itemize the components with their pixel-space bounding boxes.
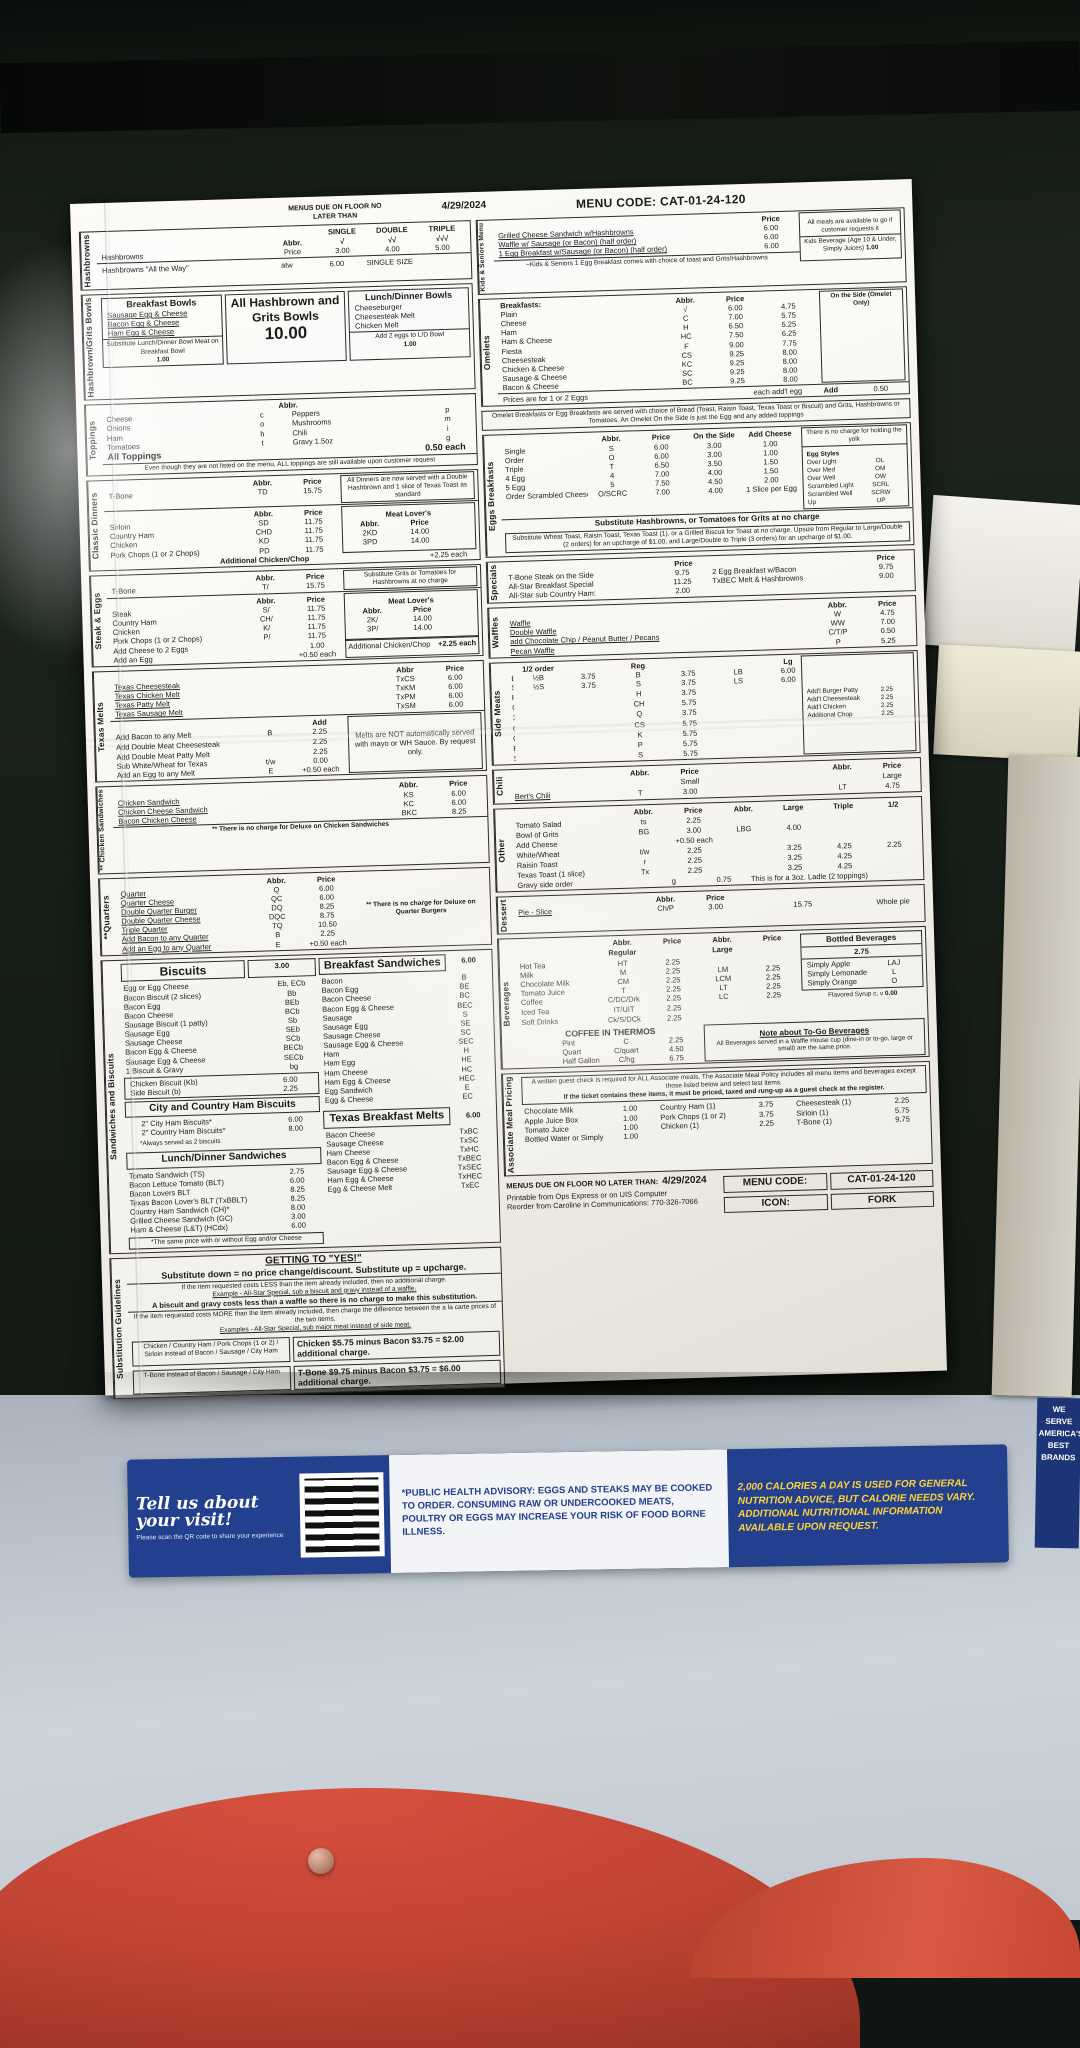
- table-cell: [514, 711, 564, 720]
- meat-lovers-table: Abbr.Price2K/14.003P/14.00: [347, 603, 476, 634]
- section-sandwiches-biscuits: Sandwiches and Biscuits Biscuits 3.00 Eg…: [100, 949, 501, 1254]
- scan-note: Please scan the QR code to share your ex…: [136, 1531, 286, 1541]
- table-cell: 1 Slice per Egg: [743, 484, 799, 495]
- table-cell: 3P/: [348, 624, 398, 635]
- table-row: Simply OrangeO: [805, 976, 919, 989]
- table-cell: 9.75: [877, 1114, 927, 1125]
- bottled-beverages-box: Bottled Beverages 2.75 Simply AppleLAJSi…: [800, 930, 924, 990]
- table-cell: r: [620, 857, 670, 868]
- onside-header-box: On the Side (Omelet Only): [819, 288, 906, 383]
- table-cell: 5.75: [665, 738, 715, 749]
- table-cell: [819, 819, 869, 828]
- section-label: Kids & Seniors Menu: [477, 221, 495, 294]
- table-cell: [870, 848, 920, 857]
- table-cell: [517, 948, 597, 958]
- table-cell: [869, 828, 919, 837]
- section-associate-meal: Associate Meal Pricing A written guest c…: [501, 1061, 933, 1177]
- addl-egg-label: each add'l egg: [750, 387, 806, 398]
- table-cell: Soft Drinks: [519, 1016, 599, 1028]
- steak-addl: Additional Chicken/Chop +2.25 each: [345, 636, 479, 658]
- table-cell: Abbr.: [597, 937, 647, 948]
- flavored-syrup: Flavored Syrup c, v 0.00: [802, 989, 924, 1000]
- table-cell: 2.25: [265, 1083, 315, 1094]
- breakfast-sandwiches-price: 6.00: [448, 951, 489, 974]
- footer-code-label: MENU CODE:: [723, 1173, 827, 1192]
- table-cell: Chicken (1): [658, 1119, 741, 1131]
- table-cell: 2.25: [669, 845, 719, 856]
- texas-melts-title: Texas Breakfast Melts: [323, 1107, 450, 1128]
- egg-styles-box: There is no charge for holding the yolk …: [801, 425, 910, 510]
- table-cell: [699, 1011, 749, 1020]
- table-cell: [565, 750, 615, 759]
- table-cell: Hashbrowns "All the Way": [100, 262, 262, 276]
- table-cell: [714, 705, 764, 714]
- table-cell: [715, 746, 765, 755]
- table-cell: 6.75: [651, 1053, 701, 1064]
- table-cell: 6.00: [431, 699, 481, 710]
- addl-chicken-chop-price: +2.25 each: [420, 549, 476, 560]
- section-label: Omelets: [479, 299, 498, 406]
- melts-adds: AddAdd Bacon to any MeltB2.25Add Double …: [113, 716, 346, 781]
- section-label: Other: [494, 809, 512, 892]
- section-label: Classic Dinners: [87, 481, 106, 570]
- table-cell: 2.25: [649, 1013, 699, 1024]
- table-cell: 5.75: [665, 748, 715, 759]
- chili-large-price: 4.75: [867, 781, 917, 792]
- bottled-list: Simply AppleLAJSimply LemonadeLSimply Or…: [805, 957, 920, 988]
- table-cell: EC: [443, 1091, 493, 1102]
- table-cell: O: [869, 976, 919, 987]
- footer-code-value: CAT-01-24-120: [830, 1170, 934, 1189]
- table-cell: 3.25: [770, 852, 820, 863]
- pie-abbr: Ch/P: [641, 903, 691, 914]
- table-cell: P: [813, 636, 863, 647]
- specials-left: T-Bone Steak on the Side9.75All-Star Bre…: [506, 567, 708, 600]
- side-meats-adds: Add'l Burger Patty2.25Add'l Cheesesteak2…: [801, 652, 917, 755]
- table-cell: [747, 942, 797, 951]
- table-cell: 3.75: [663, 677, 713, 688]
- table-cell: Simply Orange: [805, 977, 869, 988]
- togo-note: All meals are available to go if custome…: [802, 217, 898, 235]
- biscuits-title: Biscuits: [121, 960, 246, 982]
- togo-box: All meals are available to go if custome…: [799, 209, 902, 261]
- egg-styles-table: Egg StylesOver LightOLOver MedOMOver Wel…: [804, 445, 906, 507]
- table-cell: [514, 691, 564, 700]
- section-waffles: Waffles Abbr.PriceWaffleW4.75Double Waff…: [487, 595, 917, 658]
- table-cell: 3.75: [664, 687, 714, 698]
- tell-us-title: Tell us about your visit!: [136, 1493, 287, 1530]
- breakfast-bowls-box: Breakfast Bowls Sausage Egg & CheeseBaco…: [101, 295, 224, 368]
- section-specials: Specials Price Price T-Bone Steak on the…: [486, 549, 916, 604]
- table-cell: C/hg: [602, 1054, 652, 1065]
- section-beverages: Beverages Abbr.PriceAbbr.PriceRegularLar…: [497, 926, 930, 1070]
- table-cell: P: [615, 739, 665, 750]
- quarters-deluxe-note: ** There is no charge for Deluxe on Quar…: [354, 869, 488, 947]
- table-cell: [747, 952, 797, 961]
- table-cell: [502, 434, 586, 444]
- section-label: Steak & Eggs: [90, 576, 109, 666]
- table-cell: TxSM: [381, 701, 431, 712]
- all-bowls-price: 10.00: [229, 322, 342, 346]
- table-cell: E: [246, 766, 296, 777]
- berts-chili: Bert's Chili: [513, 790, 616, 802]
- table-cell: 5.75: [664, 697, 714, 708]
- chicken-side-biscuit: Chicken Biscuit (Kb)6.00Side Biscuit (b)…: [124, 1072, 320, 1100]
- menu-sheet: MENUS DUE ON FLOOR NO LATER THAN 4/29/20…: [70, 179, 947, 1395]
- table-cell: 6.00: [746, 241, 796, 252]
- yolk-note: There is no charge for holding the yolk: [804, 427, 905, 446]
- calories-text: 2,000 CALORIES A DAY IS USED FOR GENERAL…: [738, 1476, 999, 1535]
- biscuits-table: Egg or Egg CheeseEb, ECbBacon Biscuit (2…: [121, 978, 319, 1075]
- table-cell: Up: [806, 498, 856, 507]
- stacked-card: [933, 644, 1080, 761]
- table-cell: [868, 808, 918, 817]
- table-cell: T/: [240, 582, 290, 593]
- table-cell: [699, 1000, 749, 1009]
- pie-price: 3.00: [691, 901, 741, 912]
- table-cell: S: [613, 679, 663, 690]
- table-cell: 4.00: [367, 244, 417, 255]
- table-cell: t/w: [619, 847, 669, 858]
- section-label: Specials: [487, 562, 504, 603]
- melts-note: Melts are NOT automatically served with …: [347, 712, 483, 774]
- breakfast-sandwiches-table: BaconBBacon EggBEBacon CheeseBCBacon Egg…: [319, 972, 492, 1105]
- table-cell: [563, 661, 613, 670]
- table-cell: 5.25: [863, 635, 913, 646]
- table-cell: 8.00: [271, 1123, 321, 1134]
- addl-egg-price: 0.50: [856, 384, 906, 395]
- table-cell: 9.00: [861, 570, 911, 581]
- section-steak-eggs: Steak & Eggs Abbr.PriceT-BoneT/15.75 Sub…: [89, 564, 484, 668]
- addl-chicken-chop-price: +2.25 each: [438, 638, 477, 653]
- section-label: Hashbrown/Grits Bowls: [82, 295, 101, 400]
- table-cell: SINGLE SIZE: [362, 257, 418, 268]
- best-brands-card: WE SERVE AMERICA'S BEST BRANDS: [1035, 1398, 1080, 1549]
- menus-due-date: 4/29/2024: [441, 200, 486, 214]
- table-cell: 8.00: [762, 374, 818, 385]
- section-label: Toppings: [85, 405, 103, 475]
- ham-biscuits-title: City and Country Ham Biscuits: [129, 1098, 317, 1116]
- table-cell: 2.25: [649, 993, 699, 1004]
- section-bowls: Hashbrown/Grits Bowls Breakfast Bowls Sa…: [81, 283, 476, 401]
- stacked-card: [923, 495, 1080, 655]
- section-omelets: Omelets Breakfasts:Abbr.PricePlain√6.004…: [478, 286, 910, 407]
- table-cell: 14.00: [398, 622, 448, 633]
- section-label: Texas Melts: [93, 672, 112, 782]
- table-cell: [768, 811, 818, 820]
- section-toppings: Toppings Abbr. CheesecOnionsoHamhTomatoe…: [84, 393, 478, 476]
- breakfast-bowls-list: Sausage Egg & CheeseBacon Egg & CheeseHa…: [105, 308, 218, 339]
- table-cell: [714, 695, 764, 704]
- section-hashbrowns: Hashbrowns SINGLEDOUBLETRIPLEAbbr.√√√√√√…: [79, 220, 473, 291]
- meat-lovers-table: Abbr.Price2KD14.003PD14.00: [344, 516, 473, 547]
- table-cell: Abbr.: [618, 806, 668, 817]
- section-label: Chili: [493, 770, 510, 803]
- table-cell: +0.50 each: [292, 649, 342, 660]
- all-toppings-price: 0.50 each: [417, 441, 473, 454]
- table-cell: [720, 863, 770, 872]
- banner-calories: 2,000 CALORIES A DAY IS USED FOR GENERAL…: [727, 1444, 1009, 1567]
- other-table: Abbr.PriceAbbr.LargeTriple1/2Tomato Sala…: [513, 798, 920, 881]
- table-cell: [418, 255, 468, 264]
- chili-large-abbr: LT: [818, 782, 868, 793]
- table-cell: Price: [267, 247, 317, 258]
- texas-breakfast-melts-table: Bacon CheeseTxBCSausage CheeseTxSCHam Ch…: [324, 1125, 496, 1194]
- table-cell: [663, 658, 713, 667]
- table-cell: S: [615, 750, 665, 761]
- kids-beverage: Kids Beverage (Age 10 & Under, Simply Ju…: [802, 235, 898, 253]
- table-cell: [515, 752, 565, 761]
- table-cell: 2.25: [649, 1003, 699, 1014]
- omelets-table: Breakfasts:Abbr.PricePlain√6.004.75Chees…: [498, 291, 819, 393]
- section-other: Other Abbr.PriceAbbr.LargeTriple1/2Tomat…: [493, 796, 924, 893]
- section-kids-seniors: Kids & Seniors Menu Price Grilled Cheese…: [476, 207, 907, 295]
- table-cell: [513, 807, 618, 818]
- table-cell: Abbr.: [697, 935, 747, 946]
- table-cell: [749, 1009, 799, 1018]
- table-cell: T-Bone (1): [794, 1115, 877, 1127]
- table-cell: [514, 701, 564, 710]
- table-cell: 6.00: [312, 259, 362, 270]
- section-label: Dessert: [497, 897, 514, 934]
- table-cell: atw: [262, 260, 312, 271]
- table-row: UpUP: [806, 496, 906, 507]
- table-cell: 6.00: [274, 1220, 324, 1231]
- onside-header: On the Side (Omelet Only): [822, 290, 900, 308]
- table-cell: Half Gallon: [561, 1056, 602, 1066]
- table-cell: 5.00: [417, 243, 467, 254]
- table-cell: SINGLE: [317, 226, 367, 237]
- table-cell: [718, 812, 768, 821]
- shirt-button: [308, 1848, 334, 1874]
- table-cell: [564, 710, 614, 719]
- table-cell: 3.00: [669, 825, 719, 836]
- section-label: Associate Meal Pricing: [502, 1074, 521, 1175]
- chili-small: Small: [665, 776, 715, 787]
- ld-bowls-box: Lunch/Dinner Bowls CheeseburgerCheeseste…: [348, 287, 471, 360]
- table-cell: 2.00: [658, 586, 708, 597]
- table-cell: TD: [238, 487, 288, 498]
- subst-case1-left: Chicken / Country Ham / Pork Chops (1 or…: [132, 1337, 291, 1366]
- table-cell: [713, 656, 763, 665]
- table-cell: IT/UIT: [599, 1004, 649, 1015]
- thermos-table: PintC2.25QuartC/quart4.50Half GallonC/hg…: [520, 1035, 702, 1068]
- assoc-col3: Cheesesteak (1)2.25Sirloin (1)5.75T-Bone…: [794, 1095, 928, 1135]
- section-label: Hashbrowns: [80, 232, 98, 289]
- steak-note: Substitute Grits or Tomatoes for Hashbro…: [343, 566, 478, 590]
- gravy-price: 0.75: [699, 874, 749, 885]
- addl-chicken-chop: Additional Chicken/Chop: [348, 639, 431, 656]
- ld-bowls-list: CheeseburgerCheesesteak MeltChicken Melt: [352, 300, 465, 331]
- chili-large: Large: [867, 770, 917, 781]
- texas-melts-price: 6.00: [453, 1104, 494, 1127]
- assoc-col2: Country Ham (1)3.75Pork Chops (1 or 2)3.…: [658, 1099, 792, 1139]
- section-eggs-breakfasts: Eggs Breakfasts Abbr.PriceOn the SideAdd…: [482, 423, 914, 558]
- qr-code: [299, 1472, 384, 1557]
- lunch-sandwiches-table: Tomato Sandwich (TS)2.75Bacon Lettuce To…: [127, 1165, 324, 1235]
- table-cell: BKC: [384, 807, 434, 818]
- table-cell: 4.25: [819, 841, 869, 852]
- section-label: ** Chicken Sandwiches: [96, 787, 115, 873]
- table-cell: [564, 699, 614, 708]
- table-cell: 14.00: [395, 535, 445, 546]
- table-cell: 15.75: [290, 580, 340, 591]
- chili-price-hdr2: Price: [867, 760, 917, 771]
- section-label: **Quarters: [99, 879, 117, 956]
- table-cell: DOUBLE: [367, 225, 417, 236]
- section-label: Waffles: [488, 608, 505, 657]
- table-cell: [749, 999, 799, 1008]
- table-cell: 2.25: [670, 855, 720, 866]
- footer-icon-value: FORK: [830, 1190, 934, 1209]
- table-cell: [647, 945, 697, 954]
- table-cell: 4.00: [687, 485, 743, 496]
- chili-price-hdr: Price: [664, 766, 714, 777]
- table-cell: 7.00: [638, 487, 688, 498]
- dinners-note: All Dinners are now served with a Double…: [340, 471, 475, 503]
- table-cell: 15.75: [287, 485, 337, 496]
- menus-due-label: MENUS DUE ON FLOOR NO LATER THAN: [288, 203, 382, 223]
- togo-beverages-box: Note about To-Go Beverages All Beverages…: [704, 1018, 926, 1062]
- table-cell: +0.50 each: [296, 764, 346, 775]
- table-cell: bg: [269, 1061, 319, 1072]
- beverages-table: Abbr.PriceAbbr.PriceRegularLargeHot TeaH…: [517, 932, 799, 1028]
- section-texas-melts: Texas Melts AbbrPriceTexas CheesesteakTx…: [92, 660, 487, 783]
- table-cell: E: [253, 939, 303, 950]
- all-bowls-box: All Hashbrown and Grits Bowls 10.00: [224, 291, 347, 364]
- whole-pie-label: Whole pie: [865, 896, 921, 907]
- table-cell: Price: [668, 805, 718, 816]
- table-cell: C/DC/Drk: [599, 994, 649, 1005]
- table-cell: [869, 818, 919, 827]
- table-cell: [719, 833, 769, 842]
- table-cell: [698, 954, 748, 963]
- section-side-meats: Side Meats 1/2 orderRegLgBacon½B3.75B3.7…: [489, 650, 921, 766]
- table-cell: 4.25: [820, 851, 870, 862]
- table-cell: 3.75: [664, 708, 714, 719]
- table-cell: [714, 685, 764, 694]
- table-cell: Bottled Water or Simply Juices: [523, 1132, 606, 1144]
- specials-right: 2 Egg Breakfast w/Bacon9.75TxBEC Melt & …: [710, 561, 912, 594]
- table-cell: UP: [856, 496, 906, 505]
- eggs-table: Abbr.PriceOn the SideAdd CheeseSingleS6.…: [502, 428, 800, 518]
- sheet-shadow: [40, 1372, 950, 1412]
- table-cell: [720, 853, 770, 862]
- table-cell: [855, 445, 905, 454]
- table-cell: Ck/S/DCk: [599, 1015, 649, 1026]
- steak-table: Abbr.PriceSteakS/11.75Country HamCH/11.7…: [110, 593, 342, 647]
- table-cell: [870, 858, 920, 867]
- table-cell: [819, 830, 869, 839]
- toppings-left: CheesecOnionsoHamhTomatoest: [104, 410, 288, 452]
- meat-lovers-box: Meat Lover's Abbr.Price2K/14.003P/14.00: [344, 589, 479, 640]
- table-cell: [760, 291, 816, 301]
- table-cell: Q: [614, 709, 664, 720]
- table-cell: 3.00: [317, 246, 367, 257]
- health-advisory-text: *PUBLIC HEALTH ADVISORY: EGGS AND STEAKS…: [402, 1483, 717, 1540]
- table-cell: [565, 740, 615, 749]
- menu-code: MENU CODE: CAT-01-24-120: [576, 192, 746, 212]
- table-cell: H: [614, 689, 664, 700]
- table-cell: CH: [614, 699, 664, 710]
- table-cell: +0.50 each: [303, 938, 353, 949]
- table-cell: [619, 835, 669, 844]
- dinners-table: Abbr.PriceSirloinSD11.75Country HamCHD11…: [107, 506, 339, 560]
- table-cell: [245, 747, 295, 756]
- table-cell: [719, 843, 769, 852]
- table-cell: 1.00: [606, 1131, 656, 1142]
- table-cell: TRIPLE: [417, 223, 467, 234]
- feedback-banner: Tell us about your visit! Please scan th…: [127, 1444, 1009, 1577]
- footer-due-date: 4/29/2024: [660, 1175, 709, 1189]
- table-cell: Order Scrambled Cheese: [504, 490, 588, 502]
- side-meats-table: 1/2 orderRegLgBacon½B3.75B3.75LB6.00Saus…: [509, 655, 801, 763]
- table-cell: [564, 689, 614, 698]
- breakfast-sandwiches-title: Breakfast Sandwiches: [319, 954, 446, 975]
- chili-abbr: T: [615, 788, 665, 799]
- stacked-card: [992, 755, 1080, 1397]
- sheet-footer: MENUS DUE ON FLOOR NO LATER THAN: 4/29/2…: [504, 1168, 934, 1221]
- addl-egg-add: Add: [806, 385, 856, 396]
- section-classic-dinners: Classic Dinners Abbr.PriceT-BoneTD15.75 …: [86, 469, 481, 572]
- table-cell: 9.25: [712, 376, 762, 387]
- banner-advisory: *PUBLIC HEALTH ADVISORY: EGGS AND STEAKS…: [389, 1449, 729, 1573]
- table-cell: ts: [618, 816, 668, 827]
- subst-case1-right: Chicken $5.75 minus Bacon $3.75 = $2.00 …: [293, 1331, 501, 1362]
- section-quarters: **Quarters Abbr.PriceQuarterQ6.00Quarter…: [98, 866, 492, 956]
- table-cell: BC: [662, 377, 712, 388]
- all-bowls-title: All Hashbrown and Grits Bowls: [228, 293, 341, 326]
- biscuits-price: 3.00: [248, 958, 317, 979]
- table-cell: 3PD: [345, 537, 395, 548]
- quarters-table: Abbr.PriceQuarterQ6.00Quarter CheeseQC6.…: [118, 873, 353, 954]
- table-cell: [244, 717, 294, 726]
- gravy-abbr: g: [649, 875, 699, 886]
- table-cell: [517, 938, 597, 948]
- table-cell: [715, 735, 765, 744]
- table-cell: [818, 809, 868, 818]
- table-cell: 2.25: [741, 1118, 791, 1129]
- table-cell: 3.25: [769, 842, 819, 853]
- table-cell: [515, 741, 565, 750]
- meat-lovers-box: Meat Lover's Abbr.Price2KD14.003PD14.00: [341, 502, 476, 553]
- section-label: Side Meats: [490, 663, 509, 765]
- section-chicken-sandwiches: ** Chicken Sandwiches Abbr.PriceChicken …: [95, 775, 489, 874]
- waffles-table: Abbr.PriceWaffleW4.75Double WaffleWW7.00…: [507, 597, 913, 656]
- table-cell: [267, 227, 317, 236]
- table-cell: O/SCRC: [588, 489, 638, 500]
- table-cell: 8.25: [434, 806, 484, 817]
- table-cell: Regular: [597, 948, 647, 959]
- assoc-col1: Chocolate Milk1.00Apple Juice Box1.00Tom…: [522, 1103, 656, 1143]
- banner-left: Tell us about your visit! Please scan th…: [127, 1457, 295, 1578]
- footer-icon-label: ICON:: [724, 1193, 828, 1212]
- toppings-right: PepperspMushroomsmChiliiGravy 1.5ozg: [290, 404, 474, 446]
- table-cell: 2.25: [668, 815, 718, 826]
- chili-price: 3.00: [665, 787, 715, 798]
- table-cell: TxEC: [445, 1180, 495, 1191]
- table-cell: [769, 831, 819, 840]
- table-cell: +0.50 each: [669, 835, 719, 846]
